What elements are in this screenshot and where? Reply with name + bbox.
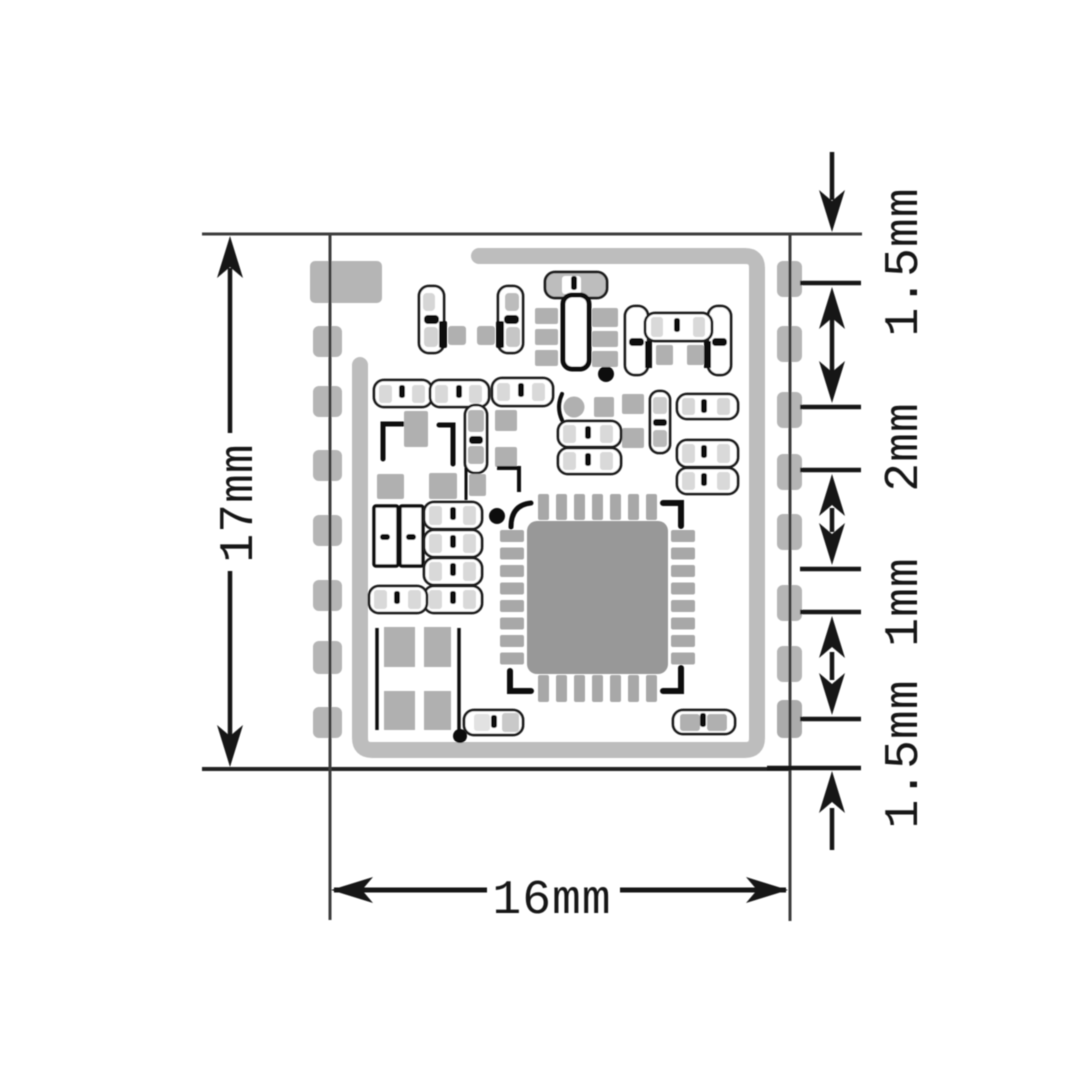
svg-text:17mm: 17mm: [213, 443, 267, 562]
svg-text:16mm: 16mm: [492, 874, 611, 928]
svg-text:2mm: 2mm: [878, 402, 932, 491]
svg-text:1mm: 1mm: [878, 557, 932, 646]
svg-text:1.5mm: 1.5mm: [878, 187, 932, 336]
svg-text:1.5mm: 1.5mm: [878, 679, 932, 828]
